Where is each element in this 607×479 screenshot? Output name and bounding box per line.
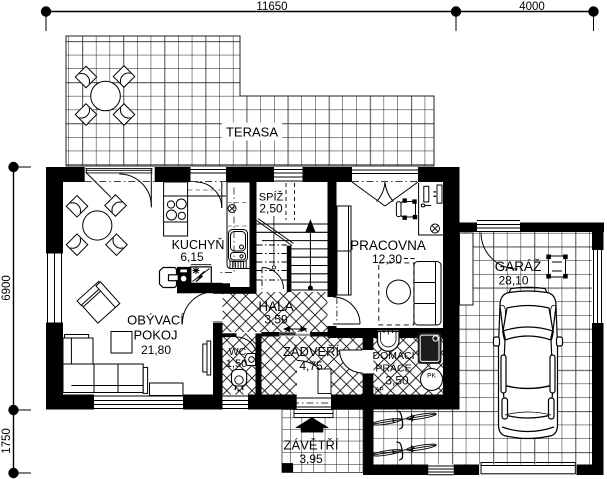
svg-text:21,80: 21,80 (141, 343, 171, 357)
svg-text:PK: PK (427, 373, 436, 380)
svg-text:WC: WC (229, 346, 247, 358)
svg-text:ZÁVĚTŘÍ: ZÁVĚTŘÍ (284, 438, 339, 453)
svg-text:3,95: 3,95 (299, 452, 323, 466)
svg-text:6900: 6900 (1, 275, 13, 301)
svg-text:2,50: 2,50 (259, 202, 283, 216)
svg-text:POKOJ: POKOJ (133, 328, 177, 343)
svg-text:4000: 4000 (519, 1, 545, 13)
svg-text:PRACOVNA: PRACOVNA (350, 238, 426, 253)
svg-text:GARÁŽ: GARÁŽ (495, 259, 542, 274)
svg-text:TERASA: TERASA (226, 125, 278, 140)
svg-text:DOMÁCÍ: DOMÁCÍ (373, 349, 415, 362)
svg-text:ZÁDVEŘÍ: ZÁDVEŘÍ (283, 344, 340, 359)
svg-text:6,15: 6,15 (180, 250, 204, 264)
svg-text:3,50: 3,50 (385, 374, 409, 388)
svg-text:11650: 11650 (256, 1, 287, 13)
svg-text:1,50: 1,50 (226, 358, 247, 370)
svg-text:1750: 1750 (1, 428, 13, 454)
svg-text:28,10: 28,10 (498, 274, 528, 288)
svg-text:12,30: 12,30 (372, 252, 402, 266)
svg-text:4,75: 4,75 (299, 359, 323, 373)
svg-text:AP: AP (375, 387, 384, 394)
svg-text:OBÝVACÍ: OBÝVACÍ (127, 313, 184, 328)
svg-text:3,59: 3,59 (264, 313, 288, 327)
